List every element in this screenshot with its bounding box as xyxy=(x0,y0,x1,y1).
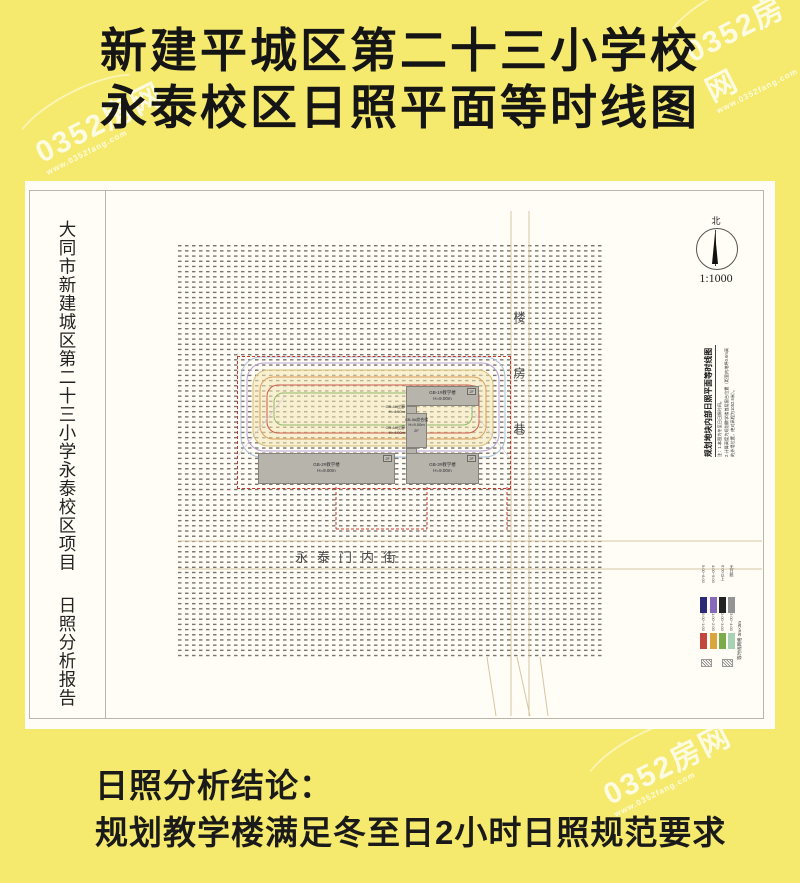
legend-swatch xyxy=(700,633,707,649)
building-gb5-height: H=9.00m xyxy=(408,422,424,427)
building-gb1-height: H=9.00m xyxy=(433,396,451,401)
legend-swatch xyxy=(728,633,735,649)
conclusion-line2: 规划教学楼满足冬至日2小时日照规范要求 xyxy=(95,809,726,856)
page-title: 新建平城区第二十三小学校 永泰校区日照平面等时线图 xyxy=(0,22,800,136)
legend-swatch xyxy=(710,633,717,649)
building-gb6-label: GB-6#过廊 H=4.00m xyxy=(371,425,405,435)
building-gb2-floors: 2F xyxy=(383,455,392,462)
street-name-right: 楼房巷 xyxy=(511,311,528,479)
building-gb2-name: GB-2#教学楼 xyxy=(313,462,340,467)
building-gb4-label: GB-4#过廊 H=4.50m xyxy=(371,404,405,414)
hatch-swatch xyxy=(722,659,733,667)
building-gb3: GB-3#教学楼 H=9.00m 2F xyxy=(406,453,479,484)
building-gb5: GB-5#综合楼 H=9.00m 2F xyxy=(406,413,427,448)
north-needle xyxy=(712,233,718,264)
building-gb2: GB-2#教学楼 H=9.00m 2F xyxy=(258,453,395,484)
north-label: 北 xyxy=(696,214,736,227)
drawing-title: 规划地块内部日照平面等时线图 xyxy=(703,345,716,457)
street-name-bottom: 永泰门内街 xyxy=(295,547,405,566)
page-title-line2: 永泰校区日照平面等时线图 xyxy=(0,79,800,136)
legend-swatch xyxy=(719,633,726,649)
legend-swatch xyxy=(710,597,717,613)
legend-column: 4:00~5:00 1:00~2:00 xyxy=(710,565,717,649)
legend-swatch xyxy=(719,597,726,613)
drawing-sheet: 大同市新建城区第二十三小学永泰校区项目 日照分析报告 xyxy=(25,181,775,729)
conclusion: 日照分析结论： 规划教学楼满足冬至日2小时日照规范要求 xyxy=(95,762,726,856)
drawing-note-1: 注：1.本图为冬至日日照时间。 xyxy=(717,345,723,457)
hatch-swatch xyxy=(701,659,712,667)
conclusion-line1: 日照分析结论： xyxy=(95,762,726,809)
legend-swatch xyxy=(700,597,707,613)
legend-column: 5:00~6:00 0:00~1:00 xyxy=(700,565,707,649)
scale-label: 1:1000 xyxy=(686,271,746,286)
building-gb1-name: GB-1#教学楼 xyxy=(429,390,456,395)
page-title-line1: 新建平城区第二十三小学校 xyxy=(0,22,800,79)
building-gb2-height: H=9.00m xyxy=(317,468,335,473)
building-gb1-floors: 2F xyxy=(467,388,476,395)
legend-caption: 等时线网格 3m×3m xyxy=(737,565,743,660)
building-gb5-name: GB-5#综合楼 xyxy=(405,417,429,422)
drawing-note-2: 2.计算高度为规划教学楼首层窗台位置（距室内地坪0.9m高的外墙位置，绝对高程为… xyxy=(724,345,736,457)
building-gb3-floors: 2F xyxy=(467,455,476,462)
legend-column: 无日照 3:00~4:00 xyxy=(728,565,735,649)
drawing-title-block: 规划地块内部日照平面等时线图 注：1.本图为冬至日日照时间。 2.计算高度为规划… xyxy=(703,345,749,457)
legend-column: 6:00以上 2:00~3:00 xyxy=(719,565,726,649)
poster-page: 0352房网 www.0352fang.com 0352房网 www.0352f… xyxy=(0,0,800,883)
building-gb3-height: H=9.00m xyxy=(433,468,451,473)
building-gb5-floors: 2F xyxy=(414,428,419,433)
building-gb3-name: GB-3#教学楼 xyxy=(429,462,456,467)
legend-swatch xyxy=(728,597,735,613)
building-gb1: GB-1#教学楼 H=9.00m 2F xyxy=(406,386,479,406)
